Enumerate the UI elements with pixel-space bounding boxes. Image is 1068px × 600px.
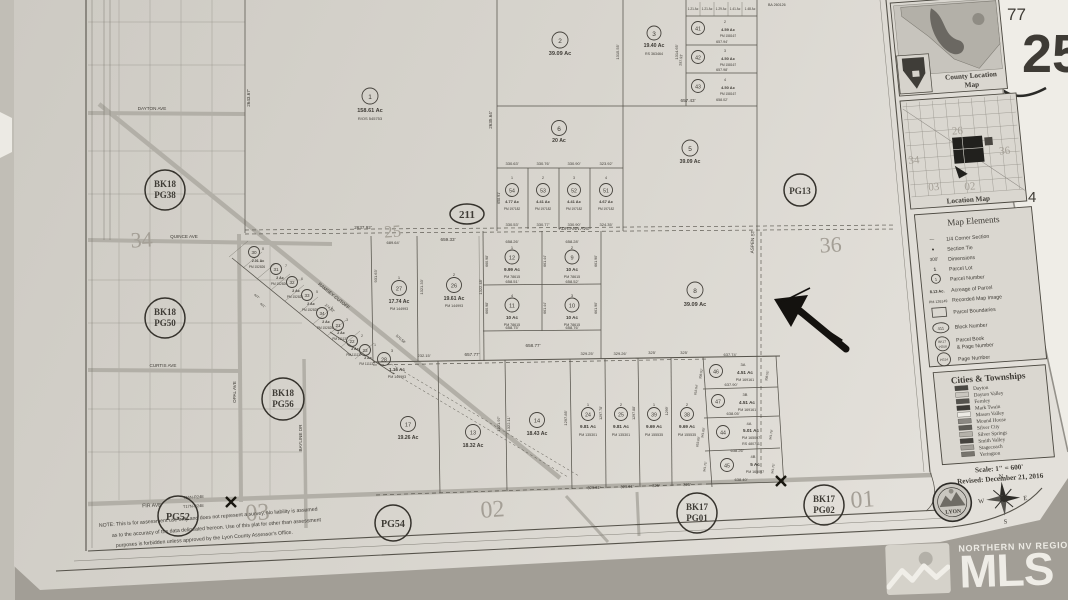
parcel-acreage: 4.50 Ac: [721, 85, 736, 90]
dim-label: 658.51': [506, 279, 519, 284]
mls-watermark: NORTHERN NV REGIONAL MLS: [885, 531, 1068, 600]
parcel-map-ref: PM 152826: [271, 282, 288, 286]
parcel-number: 13: [470, 431, 476, 437]
legend-symbol: BK17: [938, 340, 946, 345]
dim-label: 658.28': [566, 239, 579, 244]
parcel-number: 27: [396, 287, 402, 293]
dim-label: 325': [652, 483, 660, 488]
parcel-map-ref: RS 480711: [742, 442, 760, 446]
dim-label: 657.77': [465, 352, 480, 357]
parcel-number: 52: [571, 189, 577, 195]
dim-label: 638.05': [727, 411, 740, 416]
parcel-acreage: 4.77 Ac: [505, 199, 520, 204]
section-number: 25: [383, 221, 401, 241]
parcel-number: 21: [335, 323, 341, 328]
dim-label: 232.15': [418, 353, 431, 358]
dim-label: 660.98': [485, 302, 489, 314]
county-location-map: County Location Map: [890, 0, 1007, 96]
mls-wordmark: NORTHERN NV REGIONAL MLS: [958, 539, 1068, 591]
parcel-map-ref: R/OS 545753: [358, 116, 383, 121]
lot-number: 7: [285, 264, 287, 268]
dim-label: 638.26': [731, 448, 744, 453]
dim-label: 661.90': [594, 255, 598, 267]
lot-number: 5: [316, 290, 318, 294]
dim-label: 1314.65': [674, 44, 679, 59]
parcel-map-ref: PM 197182: [504, 207, 521, 211]
svg-text:PG13: PG13: [789, 186, 811, 196]
dim-label: 638.40': [735, 477, 748, 482]
dim-label: 1297.78': [599, 406, 603, 420]
dim-label: 330.53': [506, 222, 519, 227]
parcel-number: 23: [362, 348, 368, 353]
parcel-acreage: 4.41 Ac: [536, 199, 551, 204]
mls-photo-icon: [885, 543, 951, 595]
photo-left-edge: [0, 0, 15, 600]
dim-label: 659.33': [441, 237, 456, 242]
parcel-acreage: 2 Ac: [351, 347, 358, 351]
dim-label: 330.76': [537, 161, 550, 166]
parcel-acreage: 4.41 Ac: [567, 199, 582, 204]
parcel-acreage: 2 Ac: [337, 331, 344, 335]
lot-number: 3: [346, 318, 348, 322]
dim-label: 689.64': [387, 240, 400, 245]
dim-label: 658.91': [497, 192, 501, 204]
parcel-number: 45: [724, 464, 730, 470]
parcel-map-ref: PM 111137: [332, 337, 348, 341]
recorded-doc-label: BA 260126: [768, 3, 786, 7]
section-number: 02: [480, 496, 506, 524]
parcel-acreage: 17.74 Ac: [389, 299, 410, 305]
parcel-number: 31: [273, 267, 279, 272]
parcel-number: 1: [368, 94, 372, 101]
parcel-map-ref: PM 144993: [390, 307, 408, 311]
svg-text:PG56: PG56: [272, 399, 294, 409]
svg-text:PG50: PG50: [154, 318, 176, 328]
dim-label: 658.76': [566, 325, 579, 330]
paper-sliver: [0, 112, 12, 158]
parcel-acreage: 158.61 Ac: [357, 108, 383, 114]
parcel-map-ref: PM 155535: [678, 433, 696, 437]
parcel-number: 44: [720, 431, 726, 437]
parcel-acreage: 2.01 Ac: [252, 259, 264, 263]
dim-label: 658.02': [716, 98, 728, 102]
dim-label: 2643.67': [246, 89, 251, 107]
small-lot: 1.29 Ac: [716, 7, 727, 11]
loc-map-section: 02: [964, 180, 976, 193]
parcel-map-ref: PM 135301: [579, 433, 597, 437]
parcel-number: 30: [251, 250, 257, 255]
cities-townships-legend: Cities & Townships Dayton Dayton Valley …: [933, 365, 1054, 465]
parcel-acreage: 5 Ac: [750, 462, 760, 467]
dim-label: 1322.11': [506, 416, 511, 431]
parcel-number: 2: [558, 38, 562, 45]
county-map-title: Map: [964, 80, 979, 89]
dim-label: 657.94': [716, 40, 728, 44]
parcel-number: 6: [557, 126, 561, 133]
loc-map-section: 26: [951, 125, 964, 138]
parcel-number: 26: [451, 284, 457, 290]
parcel-acreage: 5.01 Ac: [743, 428, 759, 433]
lot-number: 2: [542, 176, 544, 180]
legend-symbol: PG08: [938, 345, 947, 350]
parcel-map-ref: PM 158167: [720, 63, 737, 67]
dim-label: 330.63': [506, 161, 519, 166]
parcel-number: 25: [618, 413, 624, 419]
parcel-acreage: 19.26 Ac: [398, 435, 419, 441]
parcel-map-ref: PM 158167: [720, 34, 737, 38]
parcel-number: 14: [534, 419, 540, 425]
dim-label: 329.61': [587, 485, 600, 490]
parcel-acreage: 4.51 Ac: [737, 370, 753, 375]
lot-number: 2: [361, 334, 363, 338]
road-opal-ave: [239, 234, 241, 502]
parcel-acreage: 10 Ac: [566, 267, 579, 272]
parcel-map-ref: PM 169161: [738, 408, 756, 412]
loc-map-section: 34: [908, 154, 921, 167]
parcel-map-ref: PM 165007: [742, 436, 760, 440]
map-elements-legend: Map Elements — 1/4 Corner Section ● Sect…: [914, 207, 1046, 367]
dim-label: 637.74': [724, 352, 737, 357]
parcel-map-ref: PM 144993: [445, 304, 463, 308]
dim-label: 1299': [665, 406, 669, 415]
parcel-map-ref: PM 197182: [566, 207, 583, 211]
dim-label: 329.61': [620, 484, 633, 489]
parcel-number: 32: [289, 280, 295, 285]
parcel-map-ref: PM 111137: [346, 353, 362, 357]
dim-label: 2637.92': [354, 225, 372, 230]
lot-number: 2: [724, 20, 726, 24]
dim-label: 658.77': [526, 343, 541, 348]
dim-label: 931.63': [373, 269, 378, 282]
small-lot: 1.48 Ac: [745, 7, 756, 11]
plat-map-canvas: 77 25 4: [0, 0, 1068, 600]
parcel-map-ref: PM 152825: [317, 326, 334, 330]
parcel-number: 11: [509, 304, 515, 310]
parcel-acreage: 9.69 Ac: [679, 424, 695, 429]
parcel-number: 53: [540, 189, 546, 195]
svg-text:BK18: BK18: [154, 307, 177, 317]
parcel-map-ref: PM 135301: [612, 433, 630, 437]
small-lot: 1.21 Ac: [688, 7, 699, 11]
parcel-acreage: 4.67 Ac: [599, 199, 614, 204]
dim-label: 657.43': [681, 98, 696, 103]
parcel-number: 24: [585, 413, 591, 419]
parcel-map-ref: PM 152826: [249, 265, 266, 269]
street-label: OPAL AVE: [232, 381, 237, 403]
lot-number: 3B: [743, 392, 748, 397]
dim-label: 661.90': [594, 302, 598, 314]
section-number: 34: [130, 226, 153, 252]
parcel-number: 46: [713, 370, 719, 376]
street-label: DAYTON AVE: [138, 106, 167, 111]
parcel-acreage: 19.61 Ac: [444, 296, 465, 302]
dim-label: 1297.85': [563, 410, 568, 425]
parcel-number: 5: [688, 146, 692, 153]
dim-label: 657.98': [716, 68, 728, 72]
dim-label: 2635.64': [488, 111, 493, 129]
loc-map-section: 03: [928, 181, 941, 194]
dim-label: 637.90': [725, 382, 738, 387]
legend-symbol: 300': [929, 256, 938, 262]
svg-text:BK18: BK18: [272, 388, 295, 398]
parcel-map-ref: PM 155535: [645, 433, 663, 437]
location-map: 26 36 34 03 02 Location Map: [900, 93, 1027, 209]
svg-text:PG01: PG01: [686, 513, 708, 523]
lot-number: 4: [724, 78, 726, 82]
parcel-acreage: 4.51 Ac: [739, 400, 755, 405]
lot-number: 8: [262, 247, 264, 251]
dim-label: 325': [648, 350, 656, 355]
parcel-map-ref: PM 152826: [287, 295, 304, 299]
dim-label: 329.25': [581, 351, 594, 356]
dim-label: 660.98': [485, 255, 489, 267]
parcel-map-ref: PM 144993: [388, 375, 406, 379]
parcel-acreage: 2 Ac: [307, 302, 314, 306]
parcel-acreage: 39.09 Ac: [549, 51, 572, 57]
road-curtis-ave: [88, 370, 240, 371]
underlay-number-side: 4: [1028, 189, 1036, 206]
parcel-map-ref: PM 165007: [746, 470, 764, 474]
street-label: BAYLINE DR: [298, 424, 303, 452]
seal-text: LYON: [945, 509, 961, 516]
parcel-number: 39: [651, 413, 657, 419]
dim-label: 1322.48': [478, 279, 483, 294]
parcel-number: 51: [603, 189, 609, 195]
street-label: ASPEN ST: [750, 230, 756, 253]
compass-east: E: [1023, 495, 1028, 502]
assessor-plat-photo: 77 25 4: [0, 0, 1068, 600]
underlay-big-number: 25: [1022, 24, 1068, 84]
parcel-acreage: 4.50 Ac: [721, 56, 736, 61]
dim-label: 325': [683, 482, 691, 487]
dim-label: 1297.88': [632, 406, 636, 420]
lot-number: 6: [301, 277, 303, 281]
dim-label: 323.92': [600, 161, 613, 166]
lot-number: 1: [511, 176, 513, 180]
parcel-number: 43: [695, 85, 701, 91]
dim-label: 661.44': [543, 302, 547, 314]
svg-text:BK17: BK17: [686, 502, 709, 512]
mls-brand-text: MLS: [959, 549, 1068, 591]
parcel-map-ref: PM 152825: [302, 308, 319, 312]
parcel-acreage: 9.81 Ac: [580, 424, 596, 429]
road-bayline-dr: [304, 359, 306, 528]
lot-number: 3: [724, 49, 726, 53]
parcel-number: 38: [684, 413, 690, 419]
dim-label: 325': [680, 350, 688, 355]
dim-label: 658.26': [506, 239, 519, 244]
parcel-acreage: 10 Ac: [566, 315, 579, 320]
lot-number: 4: [605, 176, 607, 180]
loc-map-section: 36: [999, 145, 1012, 158]
dim-label: 330.77': [537, 222, 550, 227]
road-minor-vertical: [637, 492, 639, 536]
svg-text:PG38: PG38: [154, 190, 176, 200]
lot-number: 4B: [751, 454, 756, 459]
parcel-number: 3: [652, 31, 656, 38]
svg-text:211: 211: [459, 209, 475, 221]
svg-text:PG54: PG54: [381, 519, 405, 530]
parcel-acreage: 19.40 Ac: [644, 43, 665, 49]
parcel-number: 34: [319, 311, 325, 316]
dim-label: 658.75': [506, 325, 519, 330]
legend-symbol: —: [929, 237, 934, 242]
parcel-acreage: 10 Ac: [506, 315, 519, 320]
parcel-acreage: 9.81 Ac: [613, 424, 629, 429]
dim-label: 324.35': [600, 222, 613, 227]
parcel-acreage: 39.09 Ac: [684, 302, 707, 308]
dim-label: 1315.55': [615, 44, 620, 59]
parcel-map-ref: PM 197182: [535, 207, 552, 211]
legend-symbol: 8.13 Ac.: [929, 288, 944, 294]
parcel-number: 42: [695, 56, 701, 62]
parcel-map-ref: RS 363464: [645, 52, 663, 56]
lot-number: 3A: [741, 362, 746, 367]
svg-text:PG02: PG02: [813, 505, 835, 515]
legend-symbol: PG24: [940, 358, 949, 363]
underlay-number: 77: [1007, 5, 1026, 24]
parcel-number: 12: [509, 256, 515, 262]
parcel-number: 47: [715, 400, 721, 406]
parcel-acreage: 4.59 Ac: [721, 27, 736, 32]
street-label: CURTIS AVE: [150, 363, 177, 368]
parcel-map-ref: PM 197182: [598, 207, 615, 211]
parcel-acreage: 18.32 Ac: [463, 443, 484, 449]
parcel-acreage: 2 Ac: [364, 356, 371, 360]
parcel-number: 54: [509, 189, 515, 195]
lot-number: 3: [573, 176, 575, 180]
parcel-acreage: 9.99 Ac: [504, 267, 520, 272]
dim-label: 661.44': [543, 255, 547, 267]
parcel-number: 17: [405, 423, 411, 429]
street-label: QUINCE AVE: [170, 234, 198, 239]
svg-text:BK17: BK17: [813, 494, 836, 504]
dim-label: 658.52': [566, 279, 579, 284]
small-lot: 1.41 Ac: [730, 7, 741, 11]
parcel-acreage: 39.09 Ac: [680, 159, 701, 165]
parcel-number: 41: [695, 27, 701, 33]
parcel-acreage: 9.69 Ac: [646, 424, 662, 429]
lot-number: 1: [374, 343, 376, 347]
parcel-map-ref: PM 111137: [359, 362, 375, 366]
dim-label: 330.90': [568, 222, 581, 227]
parcel-acreage: 2 Ac: [292, 289, 299, 293]
dim-label: 1321.97': [496, 416, 501, 431]
parcel-number: 9: [570, 256, 573, 262]
parcel-acreage: 20 Ac: [552, 138, 566, 144]
lot-number: 4A: [747, 421, 752, 426]
parcel-map-ref: PM 158167: [720, 92, 737, 96]
svg-text:BK18: BK18: [154, 179, 177, 189]
parcel-number: 8: [693, 288, 697, 295]
section-number: 36: [819, 231, 842, 257]
dim-label: 329.26': [614, 351, 627, 356]
parcel-number: 28: [381, 358, 387, 364]
small-lot: 1.21 Ac: [702, 7, 713, 11]
parcel-acreage: 1.16 Ac: [389, 367, 405, 372]
parcel-number: 33: [304, 293, 310, 298]
parcel-map-ref: PM 169161: [736, 378, 754, 382]
section-number: 01: [850, 486, 876, 514]
parcel-acreage: 2 Ac: [322, 320, 329, 324]
parcel-acreage: 2 Ac: [276, 276, 283, 280]
dim-label: 330.90': [568, 161, 581, 166]
parcel-number: 10: [569, 304, 575, 310]
dim-label: 1321.33': [419, 279, 424, 294]
parcel-number: 22: [349, 339, 355, 344]
parcel-acreage: 18.43 Ac: [527, 431, 548, 437]
